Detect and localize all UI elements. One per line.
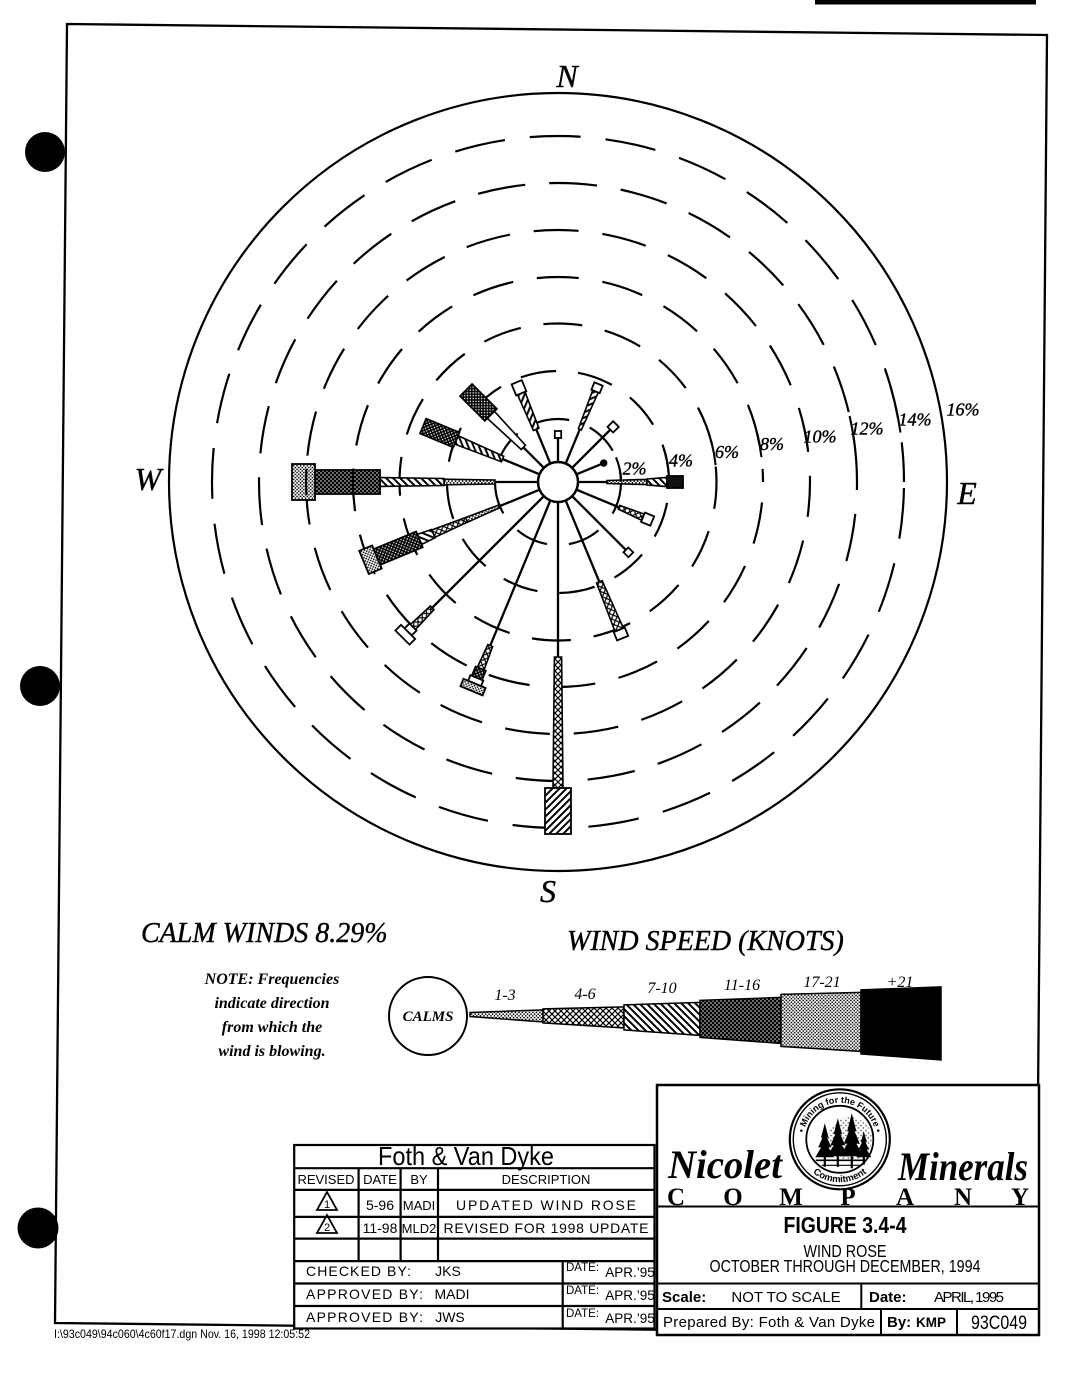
svg-text:8%: 8% <box>760 434 784 454</box>
svg-text:BY: BY <box>410 1172 428 1187</box>
svg-text:DATE:: DATE: <box>566 1285 599 1297</box>
svg-text:4-6: 4-6 <box>574 986 595 1003</box>
svg-text:NOT TO SCALE: NOT TO SCALE <box>731 1289 840 1306</box>
svg-text:1: 1 <box>324 1199 330 1211</box>
svg-text:REVISED FOR 1998 UPDATE: REVISED FOR 1998 UPDATE <box>444 1220 649 1236</box>
svg-text:E: E <box>956 475 977 511</box>
svg-text:2%: 2% <box>623 459 647 479</box>
svg-text:11-98: 11-98 <box>363 1220 398 1236</box>
svg-text:17-21: 17-21 <box>803 974 840 991</box>
svg-text:DATE:: DATE: <box>566 1308 599 1320</box>
svg-text:Scale:: Scale: <box>662 1289 706 1306</box>
svg-text:JKS: JKS <box>435 1263 461 1279</box>
svg-text:A: A <box>896 1184 914 1211</box>
svg-text:REVISED: REVISED <box>297 1172 354 1187</box>
svg-text:DATE: DATE <box>363 1172 397 1187</box>
svg-text:JWS: JWS <box>435 1309 465 1325</box>
svg-text:N: N <box>954 1184 972 1211</box>
svg-text:Foth & Van Dyke: Foth & Van Dyke <box>378 1141 554 1171</box>
svg-text:W: W <box>135 461 165 497</box>
svg-text:S: S <box>540 873 556 909</box>
svg-text:16%: 16% <box>947 400 980 420</box>
svg-text:APR.’95: APR.’95 <box>605 1311 655 1326</box>
svg-text:CALMS: CALMS <box>403 1009 454 1025</box>
svg-text:indicate direction: indicate direction <box>214 995 329 1012</box>
svg-text:Minerals: Minerals <box>897 1144 1028 1189</box>
svg-text:7-10: 7-10 <box>647 980 676 997</box>
svg-text:93C049: 93C049 <box>971 1313 1027 1334</box>
svg-text:APPROVED BY:: APPROVED BY: <box>306 1286 423 1302</box>
svg-text:APPROVED BY:: APPROVED BY: <box>306 1309 423 1325</box>
svg-text:Prepared By: Foth & Van Dyke: Prepared By: Foth & Van Dyke <box>663 1314 875 1331</box>
svg-text:from which the: from which the <box>222 1019 322 1036</box>
svg-text:+21: +21 <box>887 974 914 991</box>
svg-text:MADI: MADI <box>435 1286 470 1302</box>
svg-text:APR.’95: APR.’95 <box>605 1265 655 1280</box>
svg-text:N: N <box>555 58 579 94</box>
svg-text:By:: By: <box>887 1314 911 1331</box>
svg-text:wind is blowing.: wind is blowing. <box>218 1043 325 1060</box>
svg-text:Date:: Date: <box>869 1289 907 1306</box>
svg-text:M: M <box>779 1184 803 1211</box>
svg-text:1-3: 1-3 <box>494 987 515 1004</box>
svg-text:6%: 6% <box>715 442 739 462</box>
svg-text:C: C <box>667 1184 685 1211</box>
svg-text:CHECKED BY:: CHECKED BY: <box>306 1263 411 1279</box>
svg-text:4%: 4% <box>669 451 693 471</box>
svg-text:WIND SPEED (KNOTS): WIND SPEED (KNOTS) <box>567 926 844 957</box>
svg-text:Nicolet: Nicolet <box>667 1142 784 1187</box>
svg-text:DATE:: DATE: <box>566 1262 599 1274</box>
svg-text:12%: 12% <box>851 419 884 439</box>
svg-text:14%: 14% <box>899 410 932 430</box>
svg-text:5-96: 5-96 <box>366 1197 394 1213</box>
svg-text:MLD2: MLD2 <box>402 1221 437 1236</box>
svg-text:OCTOBER THROUGH DECEMBER, 1994: OCTOBER THROUGH DECEMBER, 1994 <box>710 1256 981 1276</box>
svg-text:CALM WINDS 8.29%: CALM WINDS 8.29% <box>141 918 388 949</box>
svg-text:KMP: KMP <box>916 1315 946 1330</box>
svg-text:I:\93c049\94c060\4c60f17.dgn: I:\93c049\94c060\4c60f17.dgn Nov. 16, 19… <box>54 1327 310 1341</box>
svg-text:APR.’95: APR.’95 <box>605 1288 655 1303</box>
svg-text:Y: Y <box>1011 1184 1029 1211</box>
svg-text:NOTE: Frequencies: NOTE: Frequencies <box>204 971 340 988</box>
svg-text:DESCRIPTION: DESCRIPTION <box>502 1172 591 1187</box>
svg-text:2: 2 <box>324 1222 330 1234</box>
svg-text:FIGURE 3.4-4: FIGURE 3.4-4 <box>784 1212 907 1238</box>
svg-text:APRIL, 1995: APRIL, 1995 <box>934 1289 1004 1306</box>
svg-text:10%: 10% <box>804 427 837 447</box>
svg-text:11-16: 11-16 <box>724 977 760 994</box>
svg-text:UPDATED WIND ROSE: UPDATED WIND ROSE <box>456 1197 636 1213</box>
svg-text:O: O <box>723 1184 742 1211</box>
svg-text:MADI: MADI <box>403 1198 436 1213</box>
